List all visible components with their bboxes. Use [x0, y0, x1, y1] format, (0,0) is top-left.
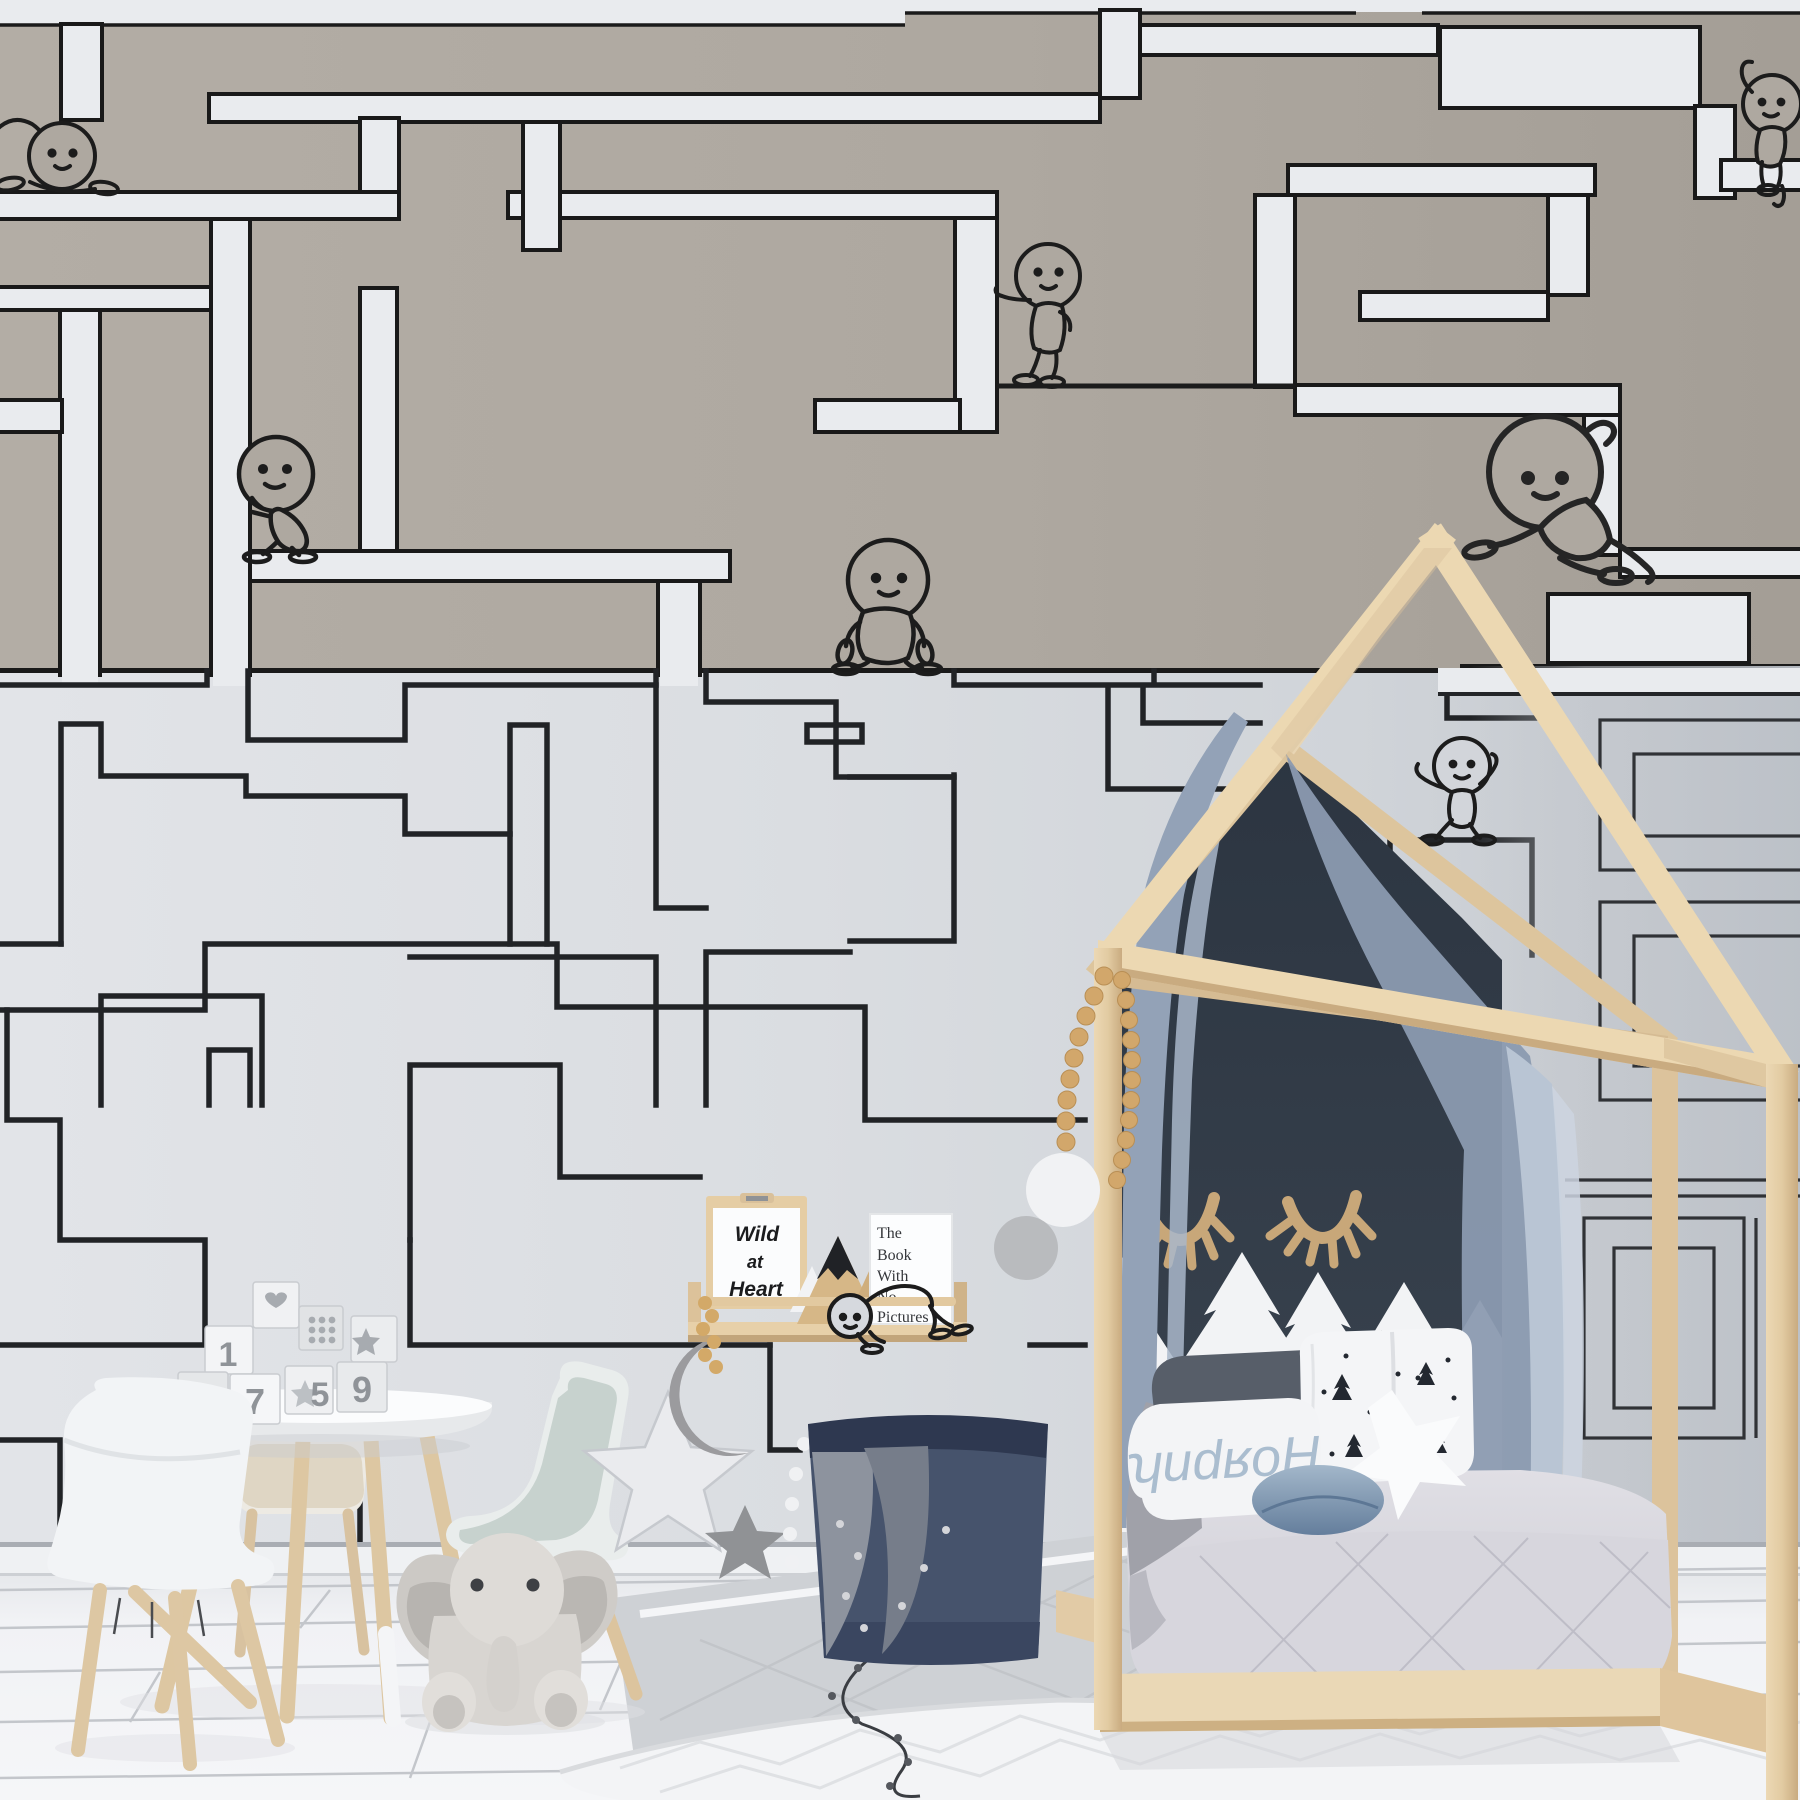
svg-text:With: With: [877, 1268, 908, 1285]
svg-text:Wild: Wild: [735, 1223, 780, 1246]
svg-text:9: 9: [352, 1369, 372, 1410]
svg-text:5: 5: [311, 1376, 330, 1414]
svg-text:at: at: [747, 1252, 764, 1272]
svg-text:Book: Book: [877, 1247, 912, 1264]
svg-text:1: 1: [219, 1336, 238, 1374]
svg-text:The: The: [877, 1225, 902, 1242]
svg-text:Pictures: Pictures: [877, 1309, 929, 1326]
